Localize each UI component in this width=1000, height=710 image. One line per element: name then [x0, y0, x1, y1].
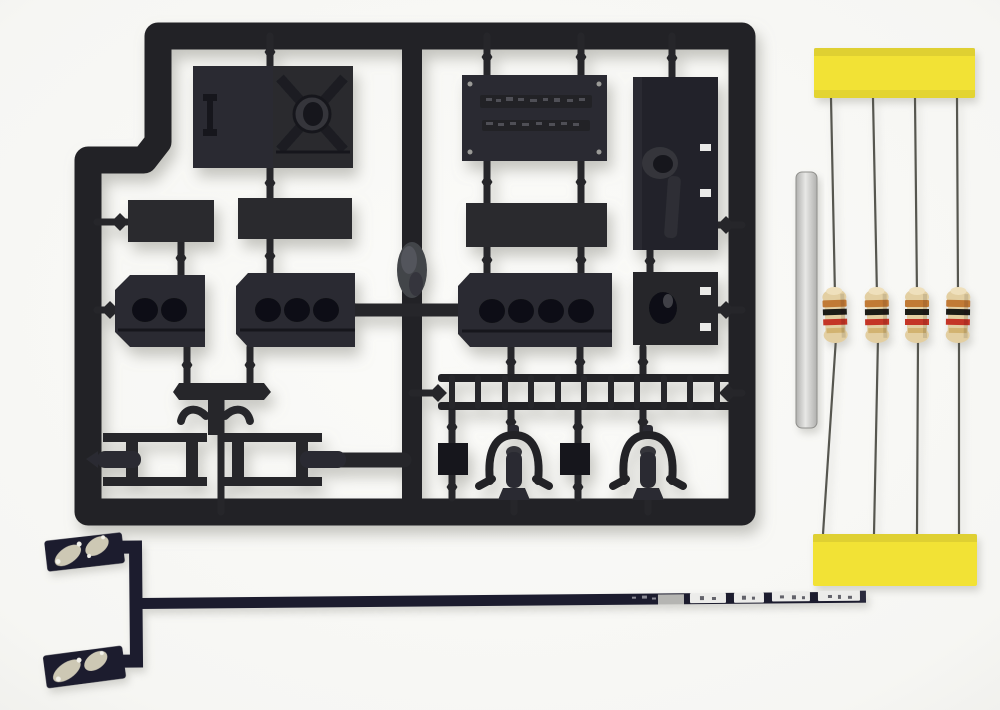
part-square-block: [560, 443, 590, 475]
part-plain-bar: [238, 198, 352, 239]
part-square-block: [438, 443, 468, 475]
part-plain-bar: [466, 203, 607, 247]
resistor: [946, 287, 971, 343]
slot: [700, 144, 711, 151]
part-boss-plate: [633, 272, 718, 345]
strip-led-segment: [690, 593, 726, 603]
part-plate-2-holes: [115, 275, 205, 347]
slot: [700, 189, 711, 197]
rivet: [468, 150, 473, 155]
strip-led-segment: [734, 593, 764, 603]
rivet: [468, 82, 473, 87]
part-panel-i-emboss: [193, 66, 273, 168]
photo-canvas: [0, 0, 1000, 710]
slot: [700, 287, 711, 295]
part-panel-x-boss: [273, 66, 353, 168]
part-footboard-plank: [173, 383, 271, 400]
strip-silver-segment: [658, 594, 684, 604]
sprue-gate-blob: [397, 242, 427, 298]
part-plate-3-holes: [236, 273, 355, 347]
part-plain-bar: [128, 200, 214, 242]
rivet: [597, 82, 602, 87]
part-tall-bracket-panel: [633, 77, 718, 250]
strip-end-cap: [860, 591, 866, 602]
resistor: [864, 287, 889, 343]
slot: [700, 323, 711, 331]
rivet: [597, 150, 602, 155]
cylinder-pin: [97, 451, 141, 468]
resistor: [905, 287, 929, 343]
resistor: [822, 287, 848, 344]
metal-tube: [796, 172, 817, 428]
part-plate-4-holes: [458, 273, 612, 347]
photo-stage: [0, 0, 1000, 710]
cylinder-pin: [300, 451, 346, 468]
part-builders-plate: [462, 75, 607, 161]
